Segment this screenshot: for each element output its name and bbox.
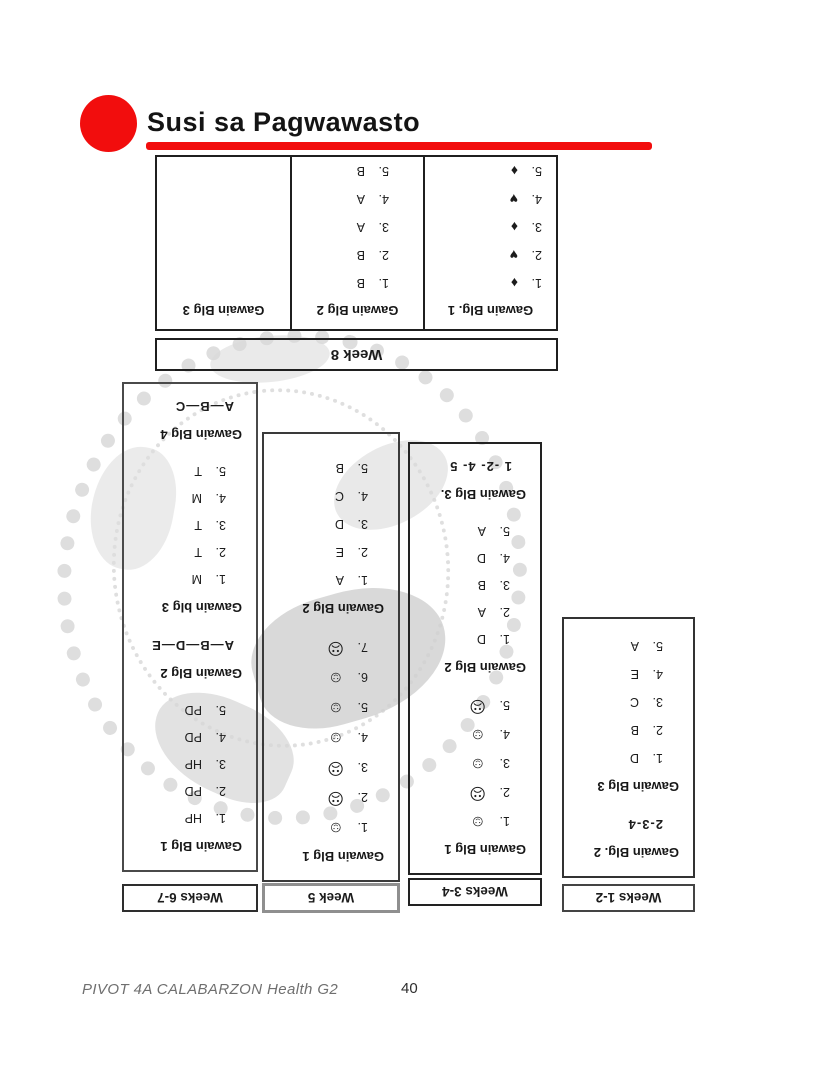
answer-item: 2.B <box>570 716 679 744</box>
happy-face-icon: ☺ <box>470 813 486 829</box>
answer-item: 5.T <box>130 458 242 485</box>
answer-item: 5.♦ <box>425 157 556 185</box>
gawain-header: Gawain Blg 3. <box>416 480 526 508</box>
answer-item: 2.☹ <box>270 782 384 812</box>
sad-face-icon: ☹ <box>327 639 344 655</box>
matching-answer: A—B—D—E <box>130 631 242 659</box>
answer-item: 4.A <box>292 185 423 213</box>
answer-item: 1.M <box>130 566 242 593</box>
answer-item: 3.A <box>292 213 423 241</box>
answer-item: 1.B <box>292 269 423 297</box>
week8-label-box: Week 8 <box>155 338 558 371</box>
weeks-6-7-box: Gawain Blg 1 1.HP 2.PD 3.HP 4.PD 5.PD Ga… <box>122 382 258 872</box>
week-5-label-box: Week 5 <box>262 883 400 913</box>
answer-item: 1.♦ <box>425 269 556 297</box>
happy-face-icon: ☺ <box>328 669 344 685</box>
week-label: Week 8 <box>331 346 382 363</box>
answer-value: A <box>478 524 486 538</box>
sad-face-icon: ☹ <box>327 759 344 775</box>
gawain-header: Gawain Blg. 1 <box>425 297 556 323</box>
answer-item: 5.B <box>270 454 384 482</box>
heart-icon: ♥ <box>510 248 518 262</box>
answer-item: 7.☹ <box>270 632 384 662</box>
gawain-header: Gawain blg 3 <box>130 593 242 621</box>
footer-module-title: PIVOT 4A CALABARZON Health G2 <box>82 981 338 998</box>
answer-value: B <box>357 164 365 178</box>
answer-item: 2.T <box>130 539 242 566</box>
answer-item: 5.A <box>416 518 526 545</box>
gawain-header: Gawain Blg 3 <box>570 772 679 800</box>
happy-face-icon: ☺ <box>328 699 344 715</box>
gawain-header: Gawain Blg 1 <box>270 842 384 870</box>
week8-gawain-2-column: Gawain Blg 2 1.B 2.B 3.A 4.A 5.B <box>290 157 423 329</box>
answer-value: E <box>631 667 639 681</box>
sequence-answer: 1 -2- 4- 5 <box>416 452 526 480</box>
week-5-box: Gawain Blg 1 1.☺ 2.☹ 3.☹ 4.☺ 5.☺ 6.☺ 7.☹… <box>262 432 400 882</box>
answer-value: T <box>194 519 202 533</box>
answer-value: A <box>336 573 344 587</box>
weeks-6-7-label-box: Weeks 6-7 <box>122 884 258 912</box>
weeks-3-4-label-box: Weeks 3-4 <box>408 878 542 906</box>
happy-face-icon: ☺ <box>470 726 486 742</box>
answer-item: 3.☹ <box>270 752 384 782</box>
answer-value: B <box>478 578 486 592</box>
answer-item: 4.D <box>416 545 526 572</box>
gawain-header: Gawain Blg 2 <box>270 594 384 622</box>
answer-item: 5.☹ <box>416 691 526 720</box>
answer-value: A <box>357 192 365 206</box>
matching-answer: A—B—C <box>130 392 242 420</box>
answer-item: 2.♥ <box>425 241 556 269</box>
sad-face-icon: ☹ <box>469 697 486 713</box>
weeks-1-2-box: Gawain Blg. 2 2-3-4 Gawain Blg 3 1.D 2.B… <box>562 617 695 878</box>
page-number: 40 <box>401 980 418 997</box>
answer-item: 4.C <box>270 482 384 510</box>
answer-value: D <box>477 551 486 565</box>
answer-value: PD <box>185 785 202 799</box>
answer-value: A <box>631 639 639 653</box>
answer-item: 4.E <box>570 660 679 688</box>
sad-face-icon: ☹ <box>327 789 344 805</box>
gawain-header: Gawain Blg 1 <box>416 835 526 863</box>
answer-value: B <box>631 723 639 737</box>
gawain-header: Gawain Blg 2 <box>416 653 526 681</box>
answer-item: 4.M <box>130 485 242 512</box>
answer-value: D <box>630 751 639 765</box>
week8-gawain-1-column: Gawain Blg. 1 1.♦ 2.♥ 3.♦ 4.♥ 5.♦ <box>423 157 556 329</box>
answer-item: 3.HP <box>130 751 242 778</box>
answer-item: 1.☺ <box>270 812 384 842</box>
gawain-header: Gawain Blg 3 <box>157 297 290 323</box>
answer-value: B <box>336 461 344 475</box>
week8-gawain-3-column: Gawain Blg 3 <box>157 157 290 329</box>
gawain-header: Gawain Blg 2 <box>292 297 423 323</box>
week-label: Week 5 <box>308 891 354 906</box>
gawain-header: Gawain Blg 4 <box>130 420 242 448</box>
answer-value: PD <box>185 731 202 745</box>
answer-value: PD <box>185 704 202 718</box>
sad-face-icon: ☹ <box>469 784 486 800</box>
answer-item: 2.B <box>292 241 423 269</box>
answer-value: C <box>630 695 639 709</box>
week-label: Weeks 1-2 <box>596 891 662 906</box>
answer-item: 3.C <box>570 688 679 716</box>
answer-item: 1.HP <box>130 805 242 832</box>
week-label: Weeks 6-7 <box>157 891 223 906</box>
answer-item: 5.A <box>570 632 679 660</box>
gawain-header: Gawain Blg 1 <box>130 832 242 860</box>
answer-item: 1.D <box>570 744 679 772</box>
answer-value: M <box>192 573 202 587</box>
answer-item: 1.☺ <box>416 806 526 835</box>
answer-item: 3.☺ <box>416 748 526 777</box>
answer-item: 1.D <box>416 626 526 653</box>
answer-item: 5.PD <box>130 697 242 724</box>
answer-value: B <box>357 276 365 290</box>
answer-value: M <box>192 492 202 506</box>
answer-value: HP <box>185 758 202 772</box>
answer-value: C <box>335 489 344 503</box>
answer-item: 2.A <box>416 599 526 626</box>
happy-face-icon: ☺ <box>328 729 344 745</box>
answer-value: HP <box>185 812 202 826</box>
answer-item: 6.☺ <box>270 662 384 692</box>
red-bullet-icon <box>80 95 137 152</box>
sequence-answer: 2-3-4 <box>570 810 679 838</box>
happy-face-icon: ☺ <box>470 755 486 771</box>
week8-answer-table: Gawain Blg. 1 1.♦ 2.♥ 3.♦ 4.♥ 5.♦ Gawain… <box>155 155 558 331</box>
answer-item: 4.PD <box>130 724 242 751</box>
answer-value: A <box>357 220 365 234</box>
diamond-icon: ♦ <box>511 164 518 178</box>
answer-item: 1.A <box>270 566 384 594</box>
answer-value: D <box>335 517 344 531</box>
answer-item: 3.♦ <box>425 213 556 241</box>
answer-key-page: Susi sa Pagwawasto Gawain Blg. 1 1.♦ 2.♥… <box>0 0 825 1075</box>
gawain-header: Gawain Blg 2 <box>130 659 242 687</box>
diamond-icon: ♦ <box>511 220 518 234</box>
heart-icon: ♥ <box>510 192 518 206</box>
week-label: Weeks 3-4 <box>442 885 508 900</box>
answer-item: 4.☺ <box>270 722 384 752</box>
answer-item: 3.D <box>270 510 384 538</box>
answer-value: D <box>477 632 486 646</box>
answer-item: 4.♥ <box>425 185 556 213</box>
gawain-header: Gawain Blg. 2 <box>570 838 679 866</box>
answer-item: 5.B <box>292 157 423 185</box>
weeks-1-2-label-box: Weeks 1-2 <box>562 884 695 912</box>
answer-item: 3.T <box>130 512 242 539</box>
weeks-3-4-box: Gawain Blg 1 1.☺ 2.☹ 3.☺ 4.☺ 5.☹ Gawain … <box>408 442 542 875</box>
title-underline <box>146 142 652 150</box>
page-title: Susi sa Pagwawasto <box>147 107 420 138</box>
answer-item: 4.☺ <box>416 720 526 749</box>
answer-value: T <box>194 465 202 479</box>
diamond-icon: ♦ <box>511 276 518 290</box>
answer-item: 2.PD <box>130 778 242 805</box>
happy-face-icon: ☺ <box>328 819 344 835</box>
answer-item: 2.E <box>270 538 384 566</box>
answer-item: 5.☺ <box>270 692 384 722</box>
answer-value: E <box>336 545 344 559</box>
answer-value: B <box>357 248 365 262</box>
answer-value: A <box>478 605 486 619</box>
answer-value: T <box>194 546 202 560</box>
answer-item: 2.☹ <box>416 777 526 806</box>
answer-item: 3.B <box>416 572 526 599</box>
